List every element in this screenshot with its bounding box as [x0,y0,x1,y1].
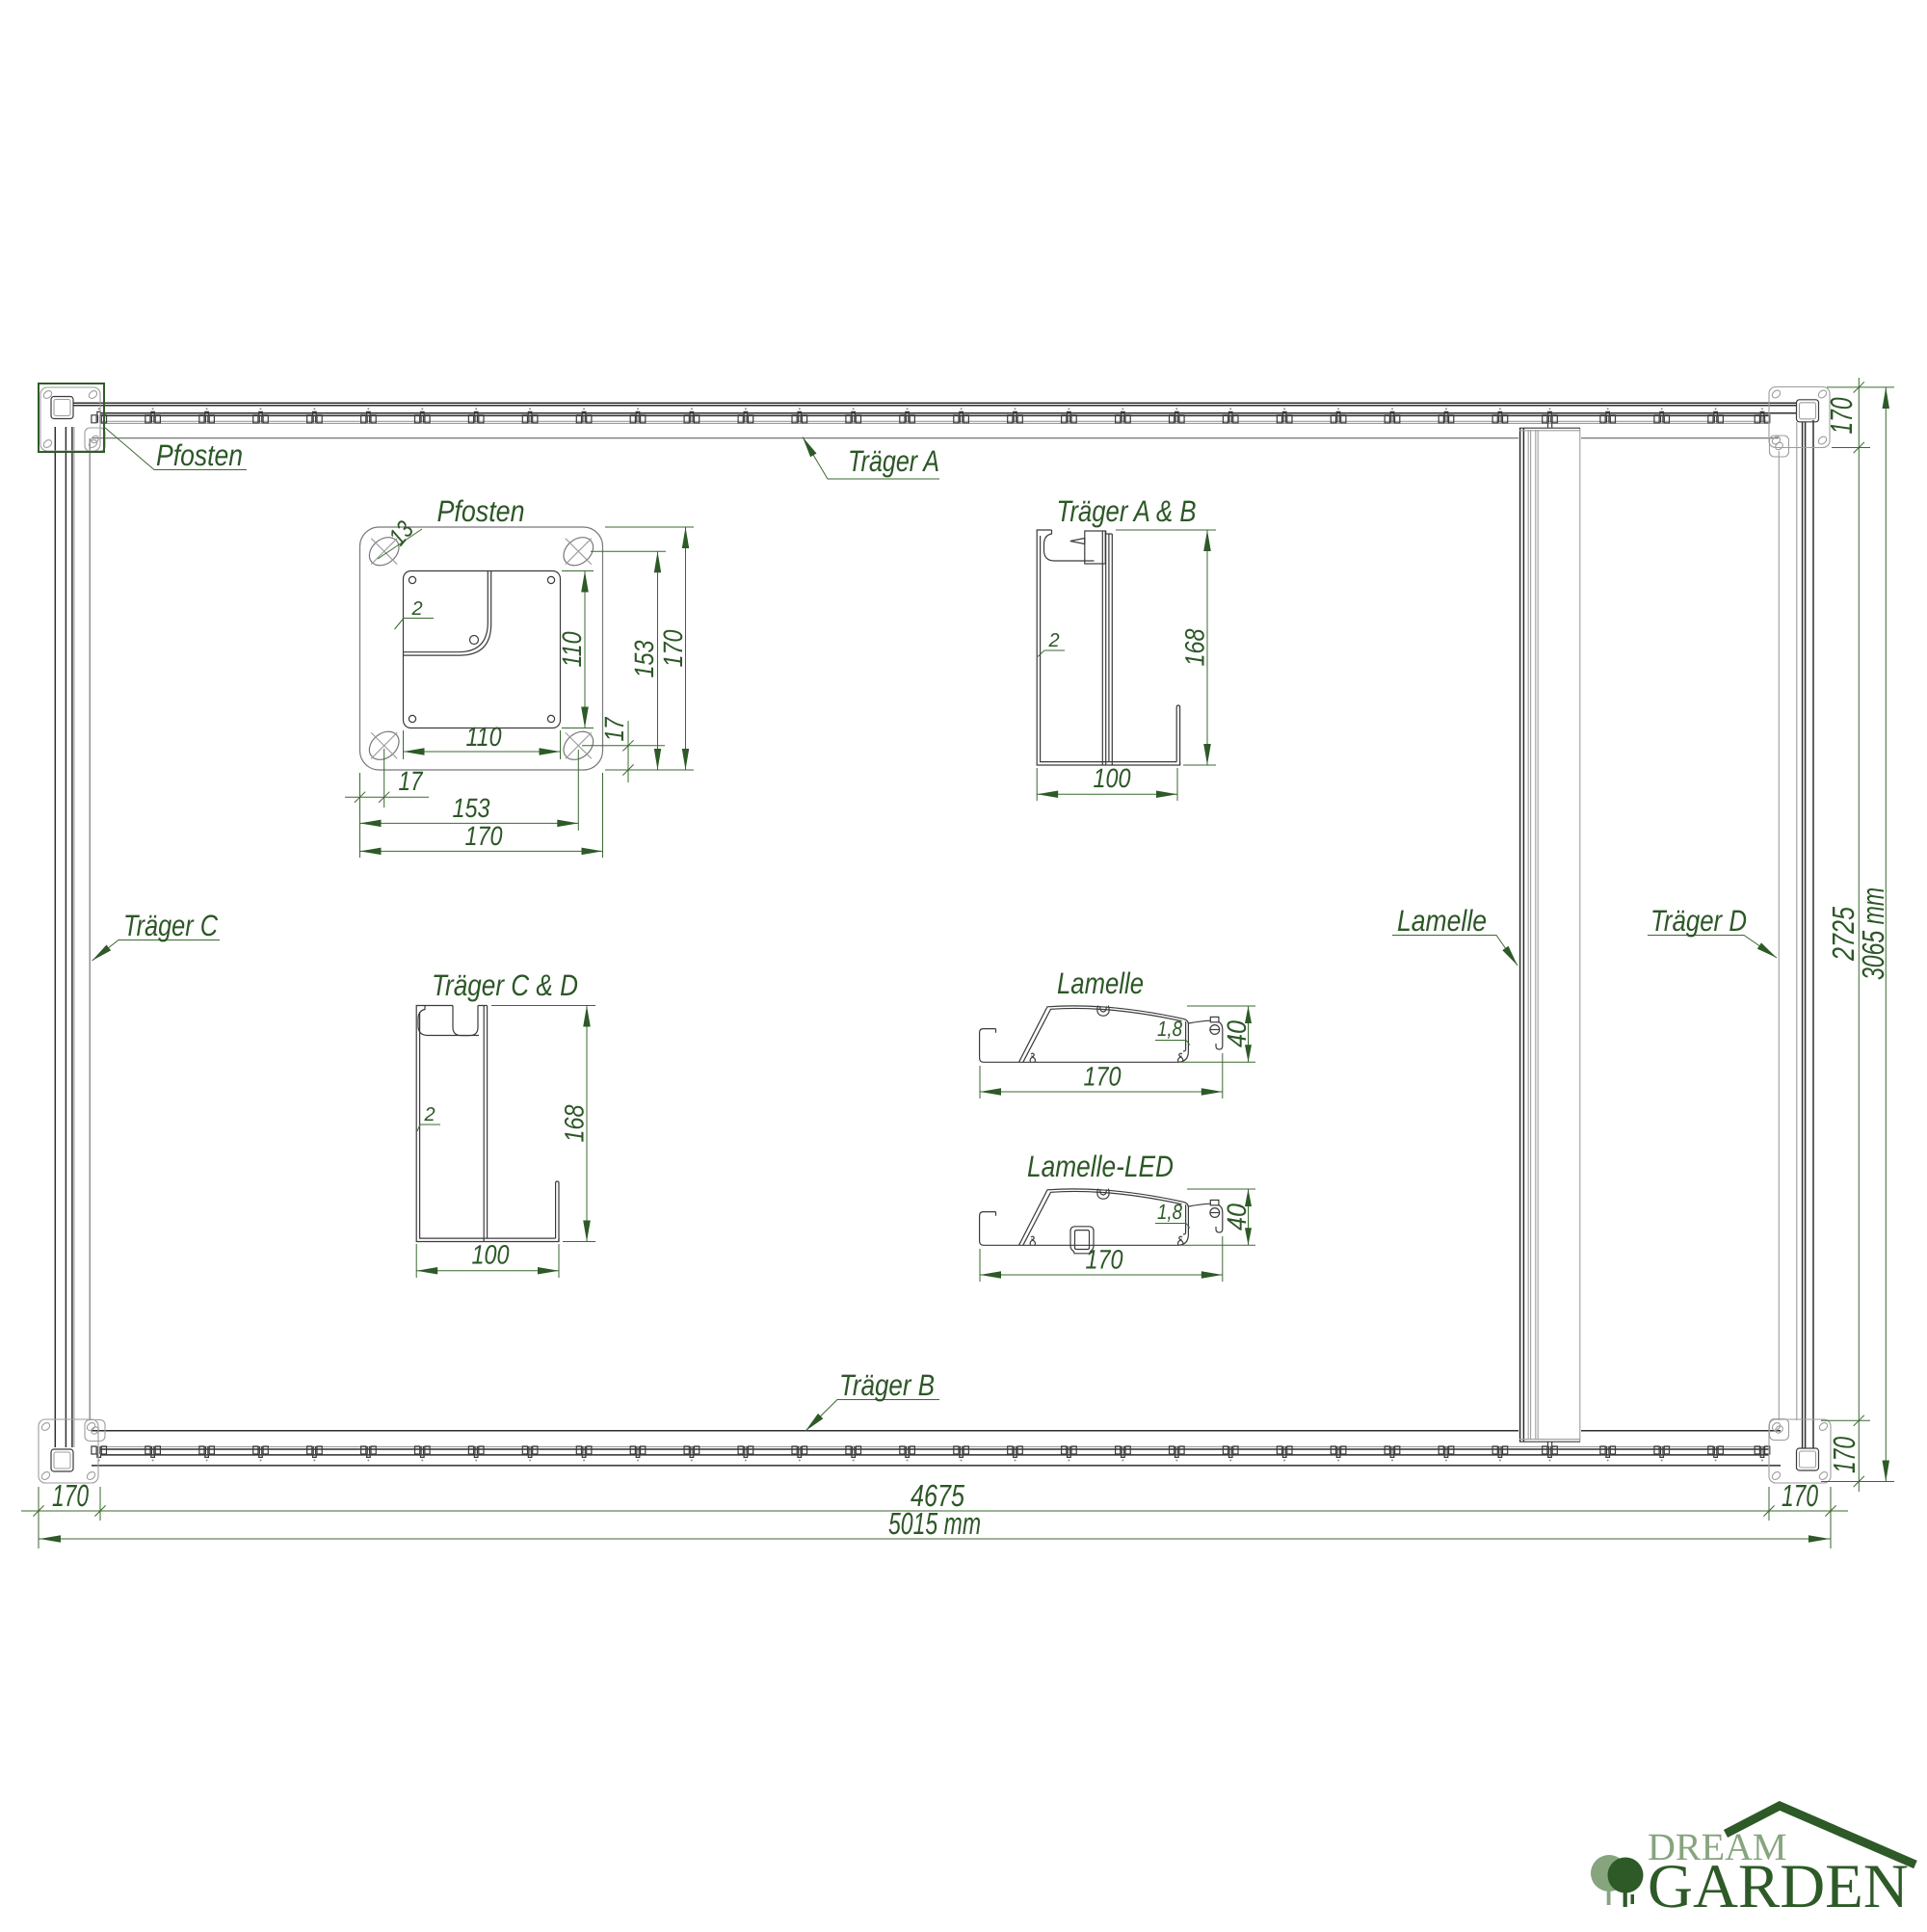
svg-text:100: 100 [1094,763,1131,793]
svg-text:170: 170 [1824,397,1859,434]
svg-text:40: 40 [1222,1204,1252,1231]
svg-text:17: 17 [399,766,424,796]
svg-text:1,8: 1,8 [1157,1017,1183,1041]
svg-text:100: 100 [472,1240,510,1270]
svg-text:170: 170 [1782,1478,1818,1513]
svg-text:5015 mm: 5015 mm [888,1506,981,1541]
svg-text:170: 170 [52,1478,89,1513]
svg-text:170: 170 [1084,1062,1122,1092]
svg-text:110: 110 [466,722,502,752]
svg-text:Pfosten: Pfosten [156,438,243,472]
svg-text:1,8: 1,8 [1157,1200,1183,1224]
svg-text:Lamelle-LED: Lamelle-LED [1027,1150,1174,1183]
svg-text:Träger C & D: Träger C & D [432,968,578,1002]
svg-text:170: 170 [658,629,688,667]
svg-text:Träger A: Träger A [848,444,939,478]
svg-text:Träger B: Träger B [839,1368,935,1402]
svg-text:Träger C: Träger C [123,909,218,942]
svg-text:110: 110 [557,631,587,667]
svg-text:153: 153 [629,640,659,677]
svg-text:Lamelle: Lamelle [1397,904,1487,938]
svg-text:Träger A & B: Träger A & B [1057,494,1197,528]
svg-text:Pfosten: Pfosten [437,494,525,528]
svg-text:GARDEN: GARDEN [1648,1852,1909,1921]
svg-text:Lamelle: Lamelle [1057,966,1144,1000]
svg-text:168: 168 [560,1104,590,1142]
svg-text:40: 40 [1222,1020,1252,1047]
svg-text:168: 168 [1180,628,1210,666]
svg-text:3065 mm: 3065 mm [1856,887,1890,980]
svg-text:153: 153 [453,793,490,823]
svg-text:2: 2 [423,1104,435,1125]
svg-text:170: 170 [1086,1245,1123,1275]
svg-text:2: 2 [410,598,422,620]
svg-text:17: 17 [599,716,629,741]
svg-text:170: 170 [1827,1437,1861,1473]
svg-text:Träger D: Träger D [1650,904,1747,938]
svg-text:2: 2 [1047,630,1059,651]
svg-text:170: 170 [465,821,503,851]
